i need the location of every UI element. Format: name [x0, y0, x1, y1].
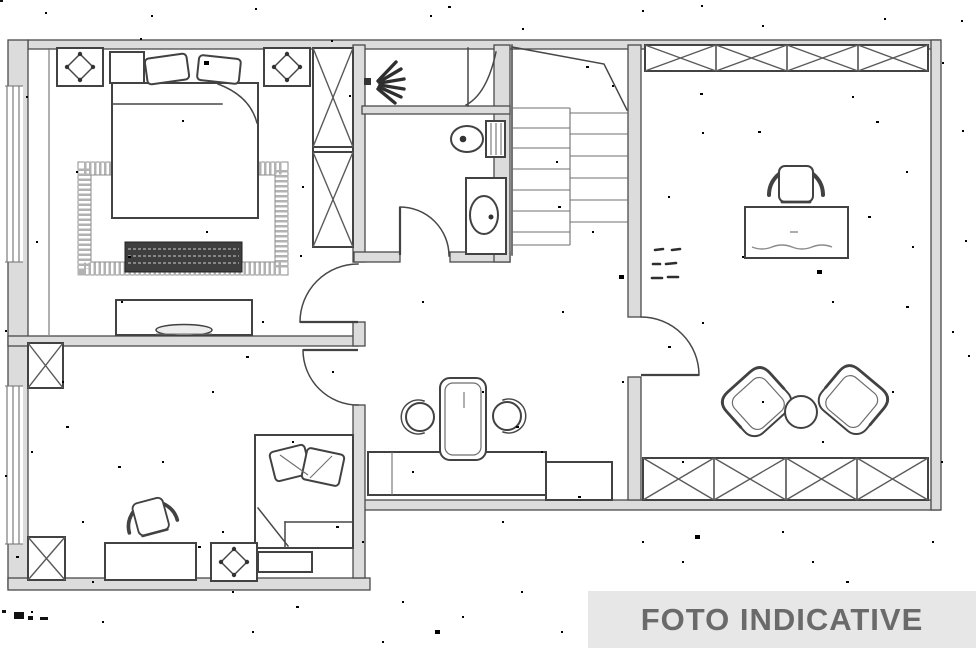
- wardrobe-cell: [28, 537, 65, 580]
- counter-cabinet: [546, 462, 612, 500]
- scan-artifact: [28, 616, 33, 620]
- shower-screen-curve: [466, 52, 496, 105]
- window-top-left: [5, 86, 23, 262]
- office-chair: [769, 166, 823, 202]
- washbasin: [466, 178, 506, 254]
- banner-label: FOTO INDICATIVE: [641, 602, 924, 638]
- floor-plan-drawing: [0, 0, 976, 650]
- ceiling-vent-icon: [211, 543, 257, 581]
- scan-artifact: [14, 612, 24, 619]
- door-right-room: [641, 317, 699, 375]
- stair-break-line: [512, 47, 627, 110]
- balcony-railing-bottom: [643, 458, 928, 500]
- wardrobe-tall: [313, 48, 353, 247]
- desk: [745, 207, 848, 258]
- single-bed: [255, 435, 353, 548]
- dining-table: [440, 378, 486, 460]
- ceiling-vent-icon: [57, 48, 103, 86]
- wardrobe-cell: [28, 343, 63, 388]
- stool: [401, 400, 434, 434]
- storage-bench: [125, 242, 242, 272]
- balcony-railing-top: [645, 45, 928, 71]
- nightstand: [110, 52, 144, 83]
- toilet: [451, 121, 505, 157]
- office-chair: [122, 494, 179, 539]
- illegible-dimension-text: [652, 249, 680, 278]
- door-bathroom: [400, 207, 449, 256]
- dresser-with-tv: [116, 300, 252, 336]
- armchair: [813, 361, 892, 440]
- scan-artifact: [40, 617, 48, 620]
- scan-artifact: [2, 610, 6, 613]
- armchair: [717, 363, 796, 442]
- ceiling-vent-icon: [264, 48, 310, 86]
- door-bottom-bedroom: [303, 350, 358, 405]
- shower: [364, 48, 496, 106]
- stool: [493, 399, 526, 433]
- window-bottom-left: [5, 386, 23, 544]
- noise-speckles: [0, 0, 3, 2]
- desk: [105, 543, 196, 580]
- staircase: [512, 45, 628, 255]
- nightstand: [258, 552, 312, 572]
- round-side-table: [785, 396, 817, 428]
- floor-plan-page: FOTO INDICATIVE: [0, 0, 976, 650]
- door-top-bedroom: [300, 264, 358, 322]
- foto-indicative-banner: FOTO INDICATIVE: [588, 591, 976, 648]
